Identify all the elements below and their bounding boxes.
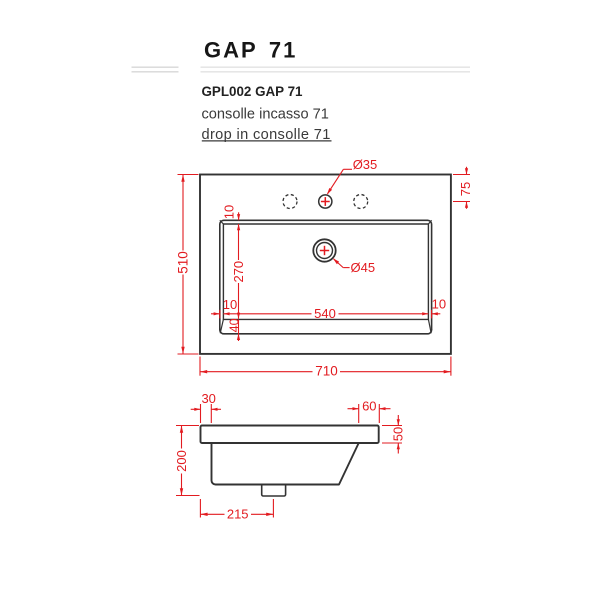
svg-text:540: 540: [314, 306, 336, 321]
svg-text:270: 270: [231, 261, 246, 283]
svg-text:GAP 71: GAP 71: [204, 38, 297, 63]
svg-text:10: 10: [432, 296, 446, 311]
svg-text:510: 510: [175, 251, 190, 274]
svg-text:consolle incasso 71: consolle incasso 71: [202, 107, 329, 123]
svg-text:GPL002 GAP 71: GPL002 GAP 71: [202, 84, 304, 99]
svg-text:10: 10: [223, 297, 237, 312]
svg-text:50: 50: [391, 427, 406, 441]
svg-text:10: 10: [222, 205, 237, 219]
svg-text:40: 40: [227, 318, 241, 332]
svg-text:75: 75: [458, 182, 473, 196]
svg-text:710: 710: [315, 364, 338, 379]
svg-text:Ø45: Ø45: [351, 260, 376, 275]
svg-text:200: 200: [174, 450, 189, 472]
svg-text:30: 30: [201, 391, 215, 406]
svg-text:60: 60: [362, 399, 376, 414]
svg-text:215: 215: [227, 507, 249, 522]
svg-text:Ø35: Ø35: [353, 157, 378, 172]
